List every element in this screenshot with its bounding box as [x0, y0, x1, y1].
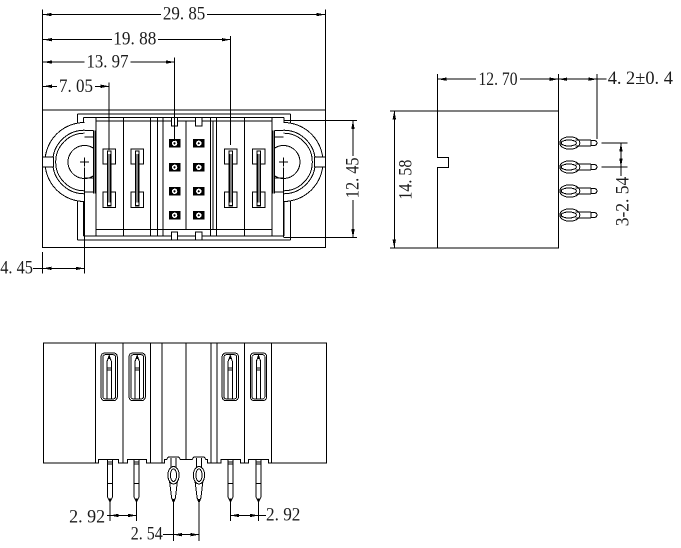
svg-text:7. 05: 7. 05	[59, 77, 93, 97]
svg-text:2. 92: 2. 92	[266, 506, 300, 526]
svg-text:14. 58: 14. 58	[397, 160, 417, 200]
svg-text:19. 88: 19. 88	[113, 30, 156, 50]
svg-text:4. 2±0. 4: 4. 2±0. 4	[608, 69, 673, 89]
svg-text:3-2. 54: 3-2. 54	[614, 177, 634, 227]
svg-text:13. 97: 13. 97	[87, 53, 129, 73]
svg-text:2. 54: 2. 54	[131, 525, 163, 545]
svg-text:4. 45: 4. 45	[0, 258, 33, 278]
svg-text:12. 45: 12. 45	[343, 157, 363, 198]
svg-text:2. 92: 2. 92	[69, 507, 105, 527]
svg-text:12. 70: 12. 70	[479, 70, 518, 90]
svg-text:29. 85: 29. 85	[163, 5, 205, 25]
